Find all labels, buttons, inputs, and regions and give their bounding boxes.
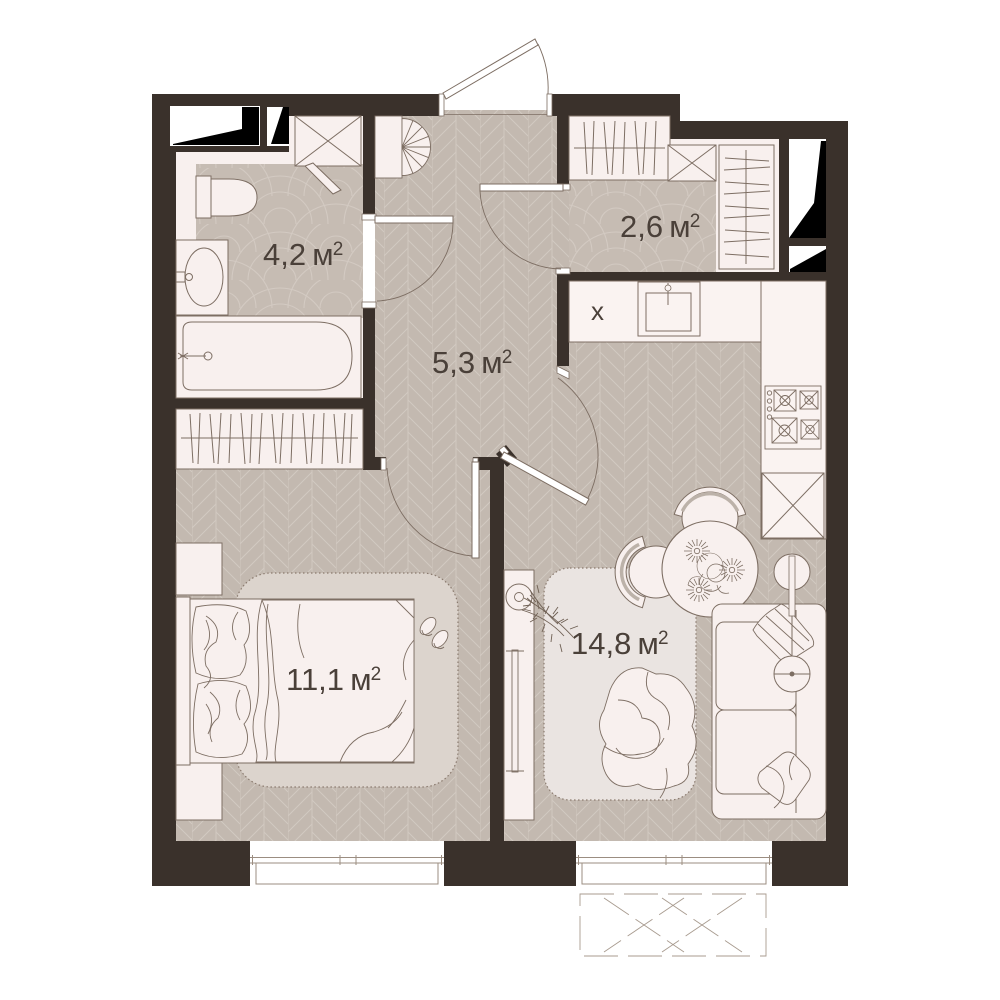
svg-text:5,3 м2: 5,3 м2 [432, 345, 512, 380]
svg-text:4,2 м2: 4,2 м2 [263, 237, 343, 272]
svg-text:2,6 м2: 2,6 м2 [620, 209, 700, 244]
svg-text:x: x [591, 296, 604, 326]
svg-text:11,1 м2: 11,1 м2 [286, 662, 381, 697]
svg-text:14,8 м2: 14,8 м2 [571, 626, 668, 661]
